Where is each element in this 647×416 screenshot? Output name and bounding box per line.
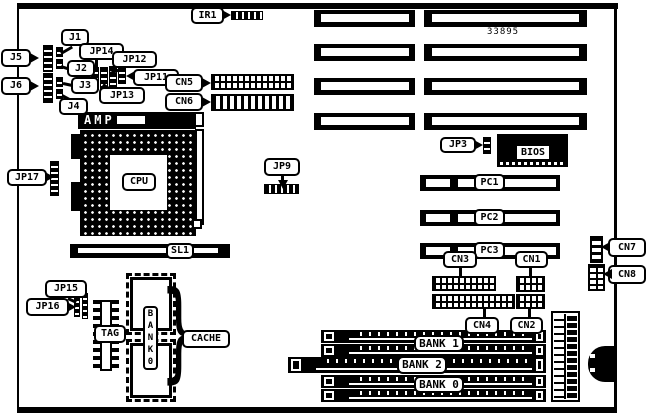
bank0-letter: 0 bbox=[145, 356, 156, 368]
cpu-label: CPU bbox=[122, 173, 156, 191]
cn5-pointer-icon bbox=[202, 78, 211, 88]
ir1-connector bbox=[231, 11, 263, 20]
j3-pins bbox=[56, 77, 63, 87]
isa-slot-2-right-key bbox=[432, 48, 579, 56]
isa-slot-3-left-key bbox=[321, 82, 409, 90]
amp-bar-window bbox=[117, 116, 145, 124]
bios-chip-pins bbox=[500, 162, 565, 165]
j4-label: J4 bbox=[59, 98, 88, 115]
bank0-cache-vertical-label: B A N K 0 bbox=[143, 306, 158, 370]
keyboard-connector-notch-bottom bbox=[590, 368, 595, 372]
cache-label: CACHE bbox=[182, 330, 230, 348]
jp14-pointer-line bbox=[95, 60, 98, 69]
tag-label: TAG bbox=[94, 325, 126, 343]
jp11-pointer-icon bbox=[126, 71, 135, 81]
j6-jumper-block bbox=[43, 73, 53, 103]
pc2-slot-key-right bbox=[458, 214, 556, 222]
bios-label: BIOS bbox=[516, 145, 550, 160]
sl1-slot-key bbox=[78, 248, 218, 253]
power-connector-pins-right bbox=[567, 314, 577, 399]
board-edge-top bbox=[17, 3, 618, 9]
j5-label: J5 bbox=[1, 49, 31, 67]
cn4-header bbox=[432, 294, 515, 309]
jp16-pointer-icon bbox=[67, 302, 76, 312]
sl1-label: SL1 bbox=[166, 243, 194, 259]
j6-pointer-icon bbox=[30, 81, 39, 91]
cn3-header bbox=[432, 276, 496, 291]
pc1-label: PC1 bbox=[474, 174, 505, 191]
ir1-label: IR1 bbox=[191, 7, 224, 24]
cn7-pointer-icon bbox=[601, 242, 610, 252]
isa-slot-3-right-key bbox=[432, 82, 579, 90]
j6-label: J6 bbox=[1, 77, 31, 95]
jp12-label: JP12 bbox=[112, 51, 157, 68]
jp3-label: JP3 bbox=[440, 137, 476, 153]
power-connector bbox=[551, 311, 580, 402]
socket-corner-tab bbox=[192, 219, 202, 229]
bank0-letter: A bbox=[145, 320, 156, 332]
jp13-label: JP13 bbox=[99, 87, 145, 104]
cn1-label: CN1 bbox=[515, 251, 548, 268]
jp9-label: JP9 bbox=[264, 158, 300, 176]
cn6-label: CN6 bbox=[165, 93, 203, 111]
pc1-slot-key-right bbox=[458, 179, 556, 187]
pc3-label: PC3 bbox=[474, 242, 505, 259]
bank0-letter: N bbox=[145, 332, 156, 344]
power-connector-pins-left bbox=[554, 314, 566, 399]
jp16-label: JP16 bbox=[26, 298, 69, 316]
jp3-pointer-icon bbox=[474, 140, 483, 150]
isa-slot-4-left-key bbox=[321, 117, 409, 125]
cn7-label: CN7 bbox=[608, 238, 646, 257]
bank2-label: BANK 2 bbox=[397, 356, 447, 374]
keyboard-connector-notch-top bbox=[590, 354, 595, 358]
bank0-letter: B bbox=[145, 308, 156, 320]
bank0-letter: K bbox=[145, 344, 156, 356]
cn4-label: CN4 bbox=[465, 317, 499, 334]
cn2-label: CN2 bbox=[510, 317, 543, 334]
cn6-header bbox=[211, 94, 294, 111]
ir1-pointer-icon bbox=[222, 10, 231, 20]
jp3-jumper-block bbox=[483, 137, 491, 154]
jp15-label: JP15 bbox=[45, 280, 87, 298]
keyboard-connector bbox=[588, 346, 615, 382]
cn8-pointer-icon bbox=[603, 269, 612, 279]
cn3-label: CN3 bbox=[443, 251, 477, 268]
j3-label: J3 bbox=[71, 77, 99, 94]
isa-slot-2-left-key bbox=[321, 48, 409, 56]
jp17-label: JP17 bbox=[7, 169, 47, 186]
pc2-slot-key-left bbox=[426, 214, 450, 222]
socket-clip-lower bbox=[71, 182, 80, 211]
pc1-slot-key-left bbox=[426, 179, 450, 187]
j2-label: J2 bbox=[67, 60, 95, 77]
socket-clip-upper bbox=[71, 134, 80, 159]
cn6-pointer-icon bbox=[202, 97, 211, 107]
jp17-pointer-icon bbox=[45, 172, 54, 182]
motherboard-diagram: IR1 33895 J5 J6 J1 J2 J3 J4 JP14 JP12 JP… bbox=[0, 0, 647, 416]
jp9-pointer-icon bbox=[278, 180, 288, 189]
cn5-header bbox=[211, 74, 294, 90]
cn1-header bbox=[516, 276, 545, 292]
pc2-label: PC2 bbox=[474, 209, 505, 226]
j5-jumper-block bbox=[43, 45, 53, 72]
bank0-label: BANK 0 bbox=[414, 376, 464, 393]
part-number: 33895 bbox=[487, 27, 519, 37]
j5-pointer-icon bbox=[30, 53, 39, 63]
jp11-jumper-block bbox=[118, 67, 126, 84]
board-edge-bottom bbox=[17, 407, 617, 413]
isa-slot-1-left-key bbox=[321, 14, 409, 22]
isa-slot-1-right-key bbox=[432, 14, 579, 22]
socket-lever bbox=[195, 129, 204, 225]
socket-lever-top bbox=[194, 112, 204, 127]
bank1-label: BANK 1 bbox=[414, 335, 464, 352]
cn5-label: CN5 bbox=[165, 74, 203, 92]
isa-slot-4-right-key bbox=[432, 117, 579, 125]
cn8-label: CN8 bbox=[608, 265, 646, 284]
